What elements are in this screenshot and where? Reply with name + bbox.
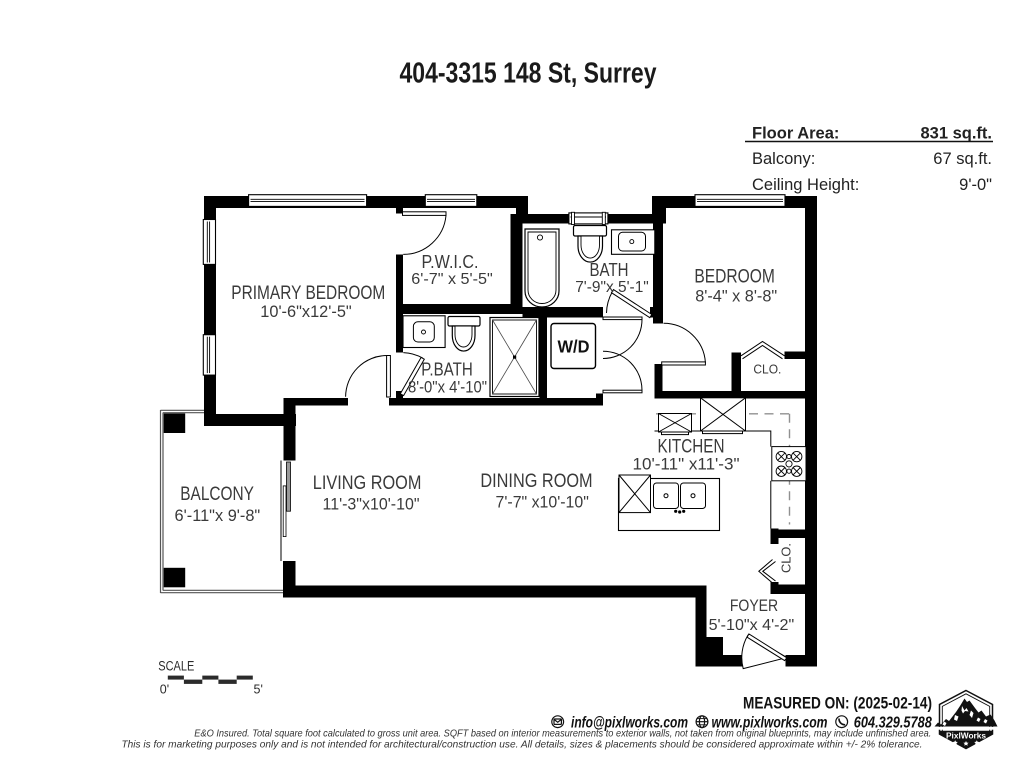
svg-text:831 sq.ft.: 831 sq.ft. [920, 125, 992, 143]
svg-text:This is for marketing purposes: This is for marketing purposes only and … [122, 739, 923, 750]
svg-text:W/D: W/D [558, 337, 590, 357]
svg-text:11'-3"x10'-10": 11'-3"x10'-10" [323, 495, 420, 514]
svg-text:E&O Insured. Total square foo: E&O Insured. Total square foot calculate… [194, 729, 931, 740]
svg-text:BALCONY: BALCONY [180, 483, 254, 505]
svg-text:Floor Area:: Floor Area: [752, 125, 839, 143]
svg-text:CLO.: CLO. [753, 362, 781, 376]
svg-text:6'-7" x 5'-5": 6'-7" x 5'-5" [411, 271, 493, 288]
svg-text:10'-6"x12'-5": 10'-6"x12'-5" [260, 302, 352, 321]
svg-text:P.W.I.C.: P.W.I.C. [422, 252, 479, 272]
svg-text:CLO.: CLO. [780, 543, 794, 573]
svg-text:PixlWorks: PixlWorks [946, 732, 987, 741]
svg-text:5'-10"x 4'-2": 5'-10"x 4'-2" [709, 617, 795, 634]
svg-text:PRIMARY BEDROOM: PRIMARY BEDROOM [231, 282, 385, 304]
svg-text:LIVING ROOM: LIVING ROOM [313, 472, 422, 494]
svg-text:9'-0": 9'-0" [959, 176, 992, 194]
svg-text:404-3315 148 St, Surrey: 404-3315 148 St, Surrey [400, 58, 657, 90]
svg-text:8'-4" x 8'-8": 8'-4" x 8'-8" [695, 286, 777, 305]
svg-text:6'-11"x 9'-8": 6'-11"x 9'-8" [175, 506, 261, 525]
svg-text:FOYER: FOYER [730, 596, 778, 615]
svg-text:7'-9"x 5'-1": 7'-9"x 5'-1" [575, 279, 649, 296]
svg-text:5': 5' [254, 682, 263, 696]
svg-text:67 sq.ft.: 67 sq.ft. [933, 150, 992, 168]
svg-text:Balcony:: Balcony: [752, 150, 815, 168]
svg-text:7'-7" x10'-10": 7'-7" x10'-10" [496, 493, 589, 512]
svg-text:0': 0' [160, 682, 169, 696]
svg-text:DINING ROOM: DINING ROOM [480, 470, 592, 492]
svg-text:BATH: BATH [590, 260, 629, 280]
svg-text:MEASURED ON: (2025-02-14): MEASURED ON: (2025-02-14) [743, 694, 932, 713]
svg-text:10'-11" x11'-3": 10'-11" x11'-3" [633, 454, 740, 473]
svg-text:SCALE: SCALE [158, 659, 194, 674]
svg-text:Ceiling Height:: Ceiling Height: [752, 176, 859, 194]
svg-text:P.BATH: P.BATH [421, 359, 473, 379]
svg-text:8'-0"x 4'-10": 8'-0"x 4'-10" [408, 378, 487, 397]
svg-text:BEDROOM: BEDROOM [694, 266, 775, 288]
